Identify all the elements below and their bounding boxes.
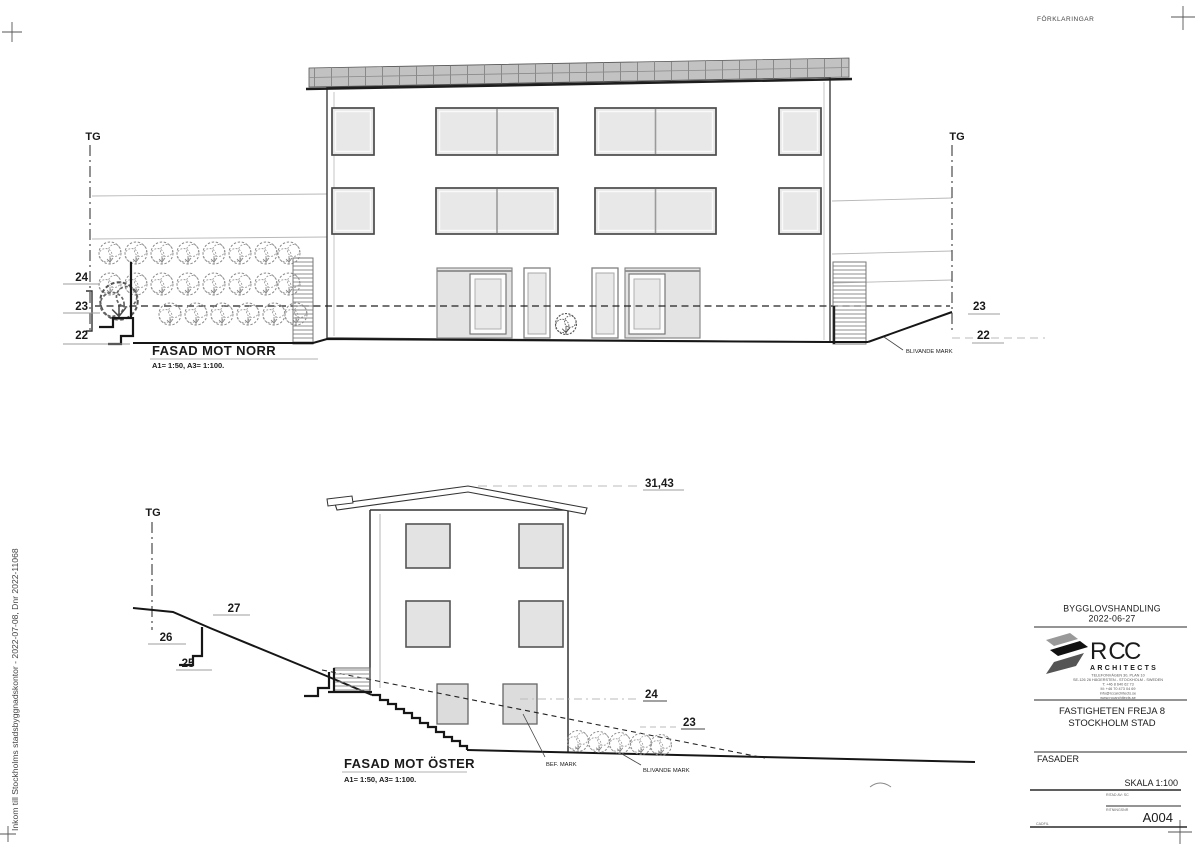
level-label: 27 (228, 603, 241, 615)
window (406, 524, 450, 568)
drawing-title-north: FASAD MOT NORR (152, 343, 276, 358)
logo-address-line: M: +46 70 473 04 69 (1101, 687, 1136, 691)
project-city: STOCKHOLM STAD (1068, 718, 1155, 729)
contour-line (832, 198, 952, 201)
level-markers-left: 27 26 25 (148, 603, 250, 670)
entry-door-unit (625, 268, 700, 338)
drawing-number: A004 (1143, 810, 1173, 825)
window (779, 188, 821, 234)
window (779, 108, 821, 155)
contour-line (832, 251, 952, 254)
window (406, 601, 450, 647)
file-caption: CADFIL (1036, 822, 1049, 826)
drawn-by-caption: RITAD AV: SC (1106, 793, 1129, 797)
entry-door-unit (437, 268, 512, 338)
window (436, 108, 558, 155)
louver-screen-right (833, 262, 866, 344)
legend-title: FÖRKLARINGAR (1037, 15, 1094, 23)
window (332, 108, 374, 155)
registry-stamp-vertical: Inkom till Stockholms stadsbyggnadskonto… (10, 548, 20, 831)
title-block: BYGGLOVSHANDLING 2022-06-27 RC C ARCHITE… (1030, 604, 1187, 828)
level-label: 23 (683, 717, 696, 729)
rcc-logo: RC C ARCHITECTS TELEFONVÄGEN 30, PLAN 10… (1046, 633, 1163, 700)
louver-screen-left (293, 258, 313, 344)
level-label: 25 (182, 658, 195, 670)
level-label: 24 (75, 272, 88, 284)
entry-door (592, 268, 618, 338)
level-label: 26 (160, 632, 173, 644)
project-name: FASTIGHETEN FREJA 8 (1059, 706, 1165, 717)
logo-address-line: TELEFONVÄGEN 30, PLAN 10 (1091, 674, 1144, 678)
bef-mark-label: BEF. MARK (546, 762, 577, 768)
future-ground-slope (868, 312, 952, 342)
drawing-sheet: FÖRKLARINGAR Inkom till Stockholms stads… (0, 0, 1200, 848)
level-label: 24 (645, 689, 658, 701)
entrance-platform (328, 668, 372, 692)
window (437, 684, 468, 724)
ridge-level-label: 31,43 (645, 478, 674, 490)
contour-line (92, 237, 327, 239)
window (519, 601, 563, 647)
logo-address-line: T: +46 8 640 62 73 (1102, 683, 1134, 687)
sheet-canvas: FÖRKLARINGAR Inkom till Stockholms stads… (0, 0, 1200, 848)
crosshair-top-left (2, 22, 22, 42)
window (332, 188, 374, 234)
leader-line (622, 754, 641, 765)
scale-label: SKALA 1:100 (1124, 778, 1178, 788)
level-markers-right: 23 22 (968, 301, 1004, 343)
level-label: 22 (977, 330, 990, 342)
drawing-scale-note: A1= 1:50, A3= 1:100. (344, 775, 416, 784)
logo-text-orange: RC (1090, 638, 1127, 665)
ground-line-lower (467, 750, 975, 762)
level-label: 23 (75, 301, 88, 313)
retaining-wall (99, 262, 131, 327)
building-wall (327, 77, 830, 342)
logo-address-line: www.rccarchitects.se (1100, 696, 1135, 700)
level-label: 23 (973, 301, 986, 313)
document-type: BYGGLOVSHANDLING (1063, 604, 1161, 614)
window (503, 684, 537, 724)
contour-line (92, 194, 327, 196)
drawing-number-caption: RITNINGSNR (1106, 808, 1129, 812)
rcc-logo-mark (1046, 633, 1088, 674)
window (595, 188, 716, 234)
crosshair-top-right (1171, 6, 1195, 30)
window (436, 188, 558, 234)
window (519, 524, 563, 568)
level-label: 22 (75, 330, 88, 342)
facade-north-drawing: TG TG (63, 58, 1045, 370)
grid-label-tg-left: TG (85, 131, 100, 143)
drawing-scale-note: A1= 1:50, A3= 1:100. (152, 361, 224, 370)
document-date: 2022-06-27 (1089, 614, 1136, 624)
grid-label-tg: TG (145, 507, 160, 519)
facade-east-drawing: TG 31,43 (133, 478, 975, 787)
leader-line (884, 337, 903, 350)
retaining-wall (108, 317, 133, 344)
logo-address-line: SE-126 26 HÄGERSTEN - STOCKHOLM - SWEDEN (1073, 678, 1163, 682)
drawing-title-east: FASAD MOT ÖSTER (344, 756, 475, 771)
logo-text-dark: C (1124, 638, 1142, 665)
sheet-content-label: FASADER (1037, 754, 1080, 764)
window (595, 108, 716, 155)
entry-door (524, 268, 550, 338)
terrain-arc (870, 783, 891, 787)
blivande-mark-label: BLIVANDE MARK (906, 349, 953, 355)
planting (568, 731, 672, 756)
logo-subtitle: ARCHITECTS (1090, 665, 1158, 672)
blivande-mark-label: BLIVANDE MARK (643, 768, 690, 774)
grid-label-tg-right: TG (949, 131, 964, 143)
